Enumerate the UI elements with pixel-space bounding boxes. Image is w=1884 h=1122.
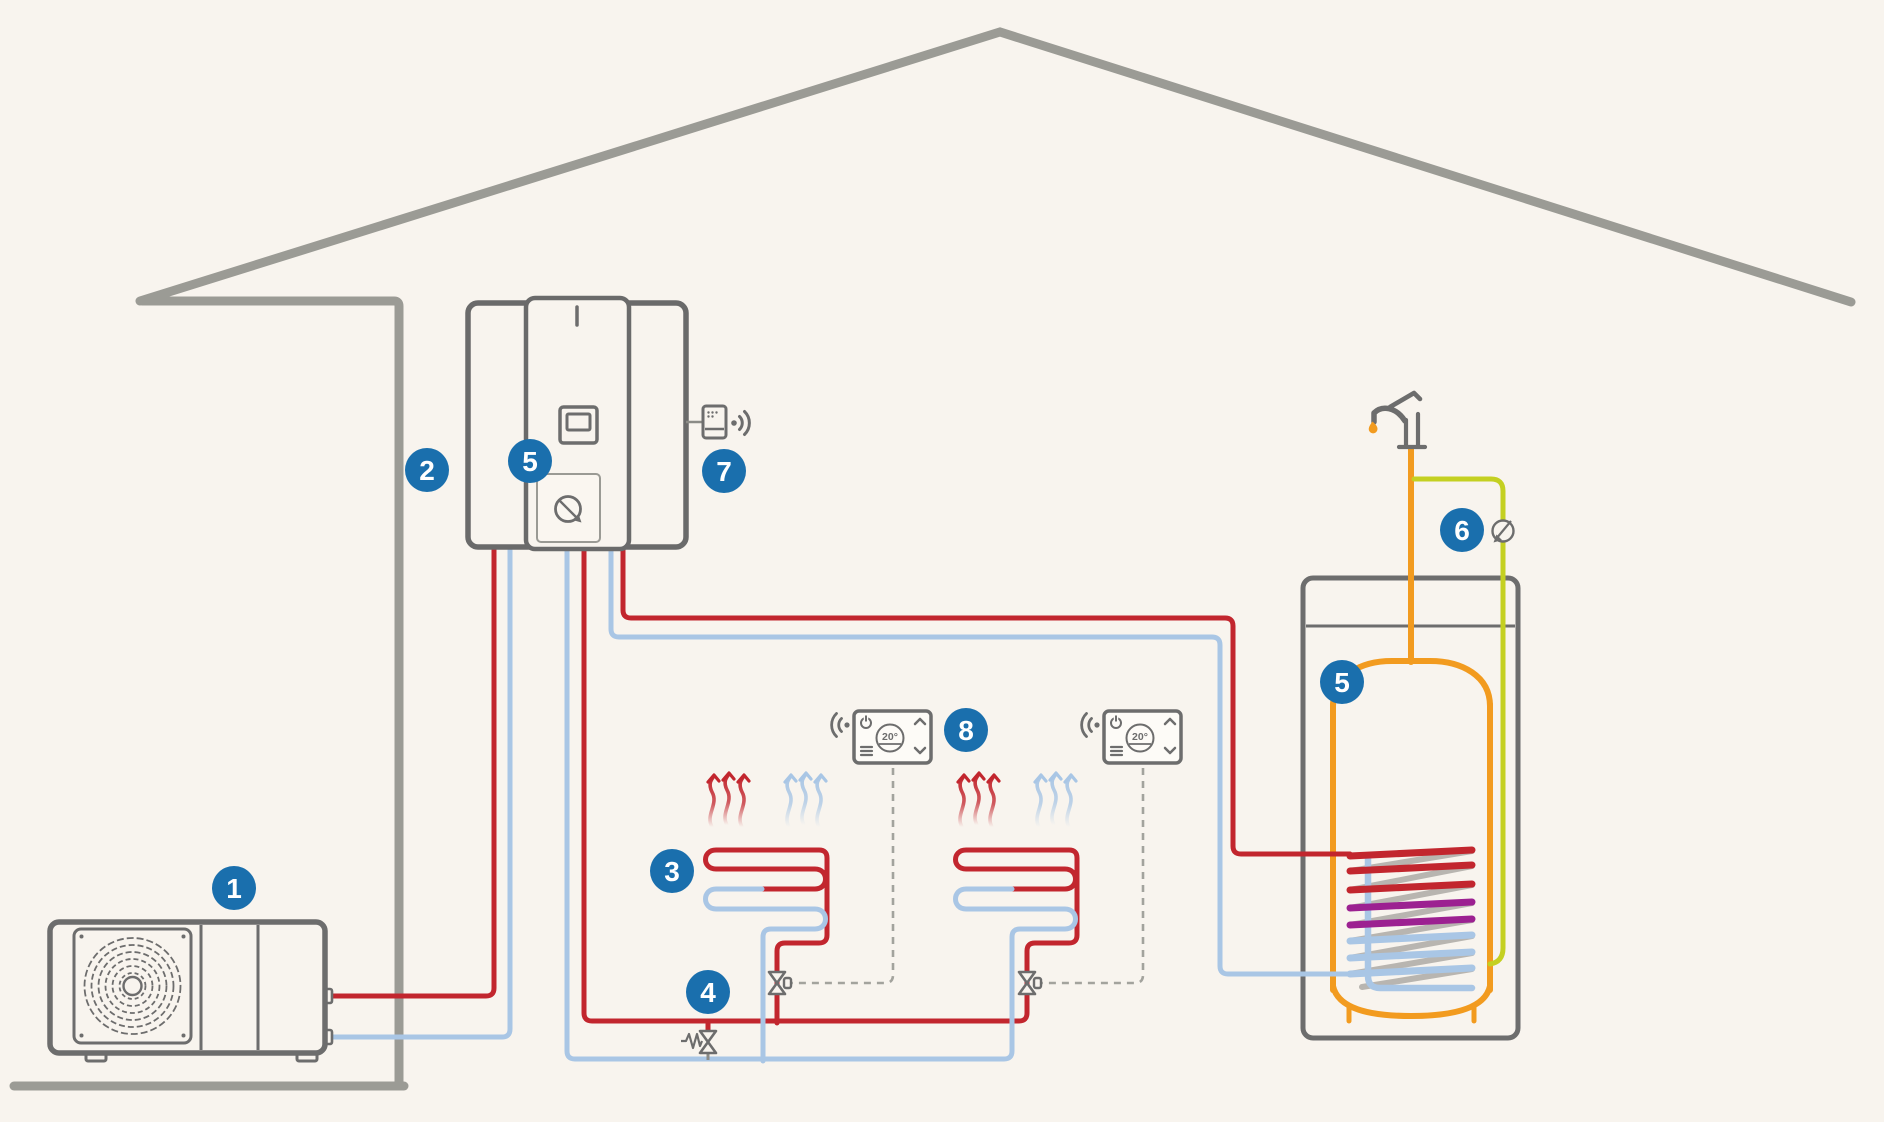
callout-line-set: 2 [405,448,449,492]
callout-number: 2 [419,455,435,486]
check-valve-icon [1493,521,1514,543]
callout-number: 7 [716,456,732,487]
temperature-reading: 20° [882,731,898,743]
zone-valve-actuator [784,978,791,988]
gateway-box [703,406,726,438]
callout-hot-water-tank: 5 [1320,660,1364,704]
callout-number: 1 [226,873,242,904]
callout-bypass-valve: 4 [686,970,730,1014]
indoor-unit [468,298,686,549]
zone-valve-actuator [1034,978,1041,988]
callout-number: 5 [1334,667,1350,698]
temperature-reading: 20° [1132,731,1148,743]
outdoor-unit [50,922,332,1061]
callout-cold-water-valve: 6 [1440,508,1484,552]
heating-system-diagram: 20° 20° [0,0,1884,1122]
callout-number: 5 [522,446,538,477]
callout-indoor-unit: 5 [508,439,552,483]
callout-underfloor-heating: 3 [650,849,694,893]
callout-number: 3 [664,856,680,887]
callout-number: 6 [1454,515,1470,546]
callout-number: 4 [700,977,716,1008]
callout-outdoor-unit: 1 [212,866,256,910]
callout-wireless-gateway: 7 [702,449,746,493]
callout-number: 8 [958,715,974,746]
diagram-canvas: 20° 20° [0,0,1884,1122]
control-display-screen [567,414,590,430]
callout-room-thermostat: 8 [944,708,988,752]
